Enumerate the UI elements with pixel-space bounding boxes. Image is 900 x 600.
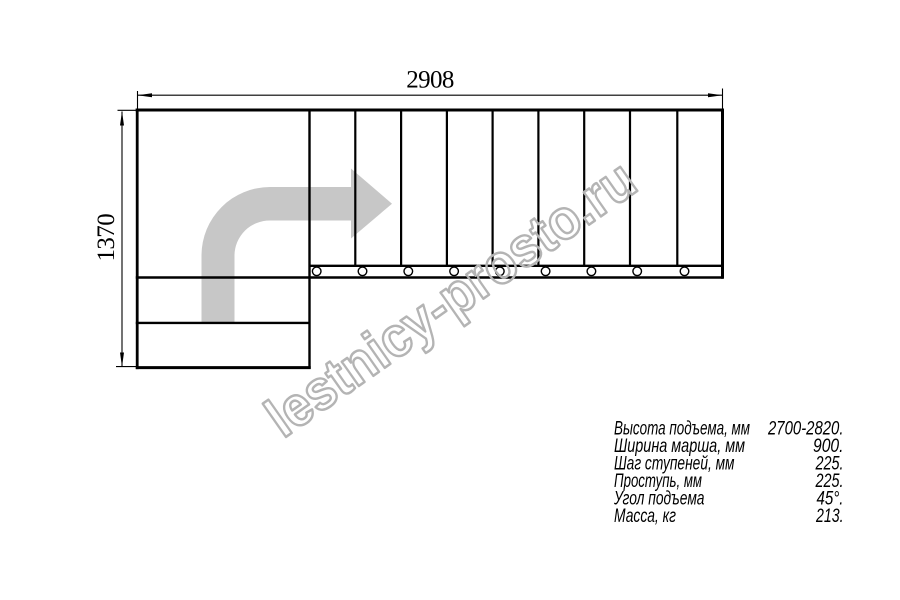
svg-text:2908: 2908 [406, 67, 454, 94]
svg-text:1370: 1370 [93, 214, 120, 262]
svg-text:Масса, кг: Масса, кг [614, 506, 676, 527]
svg-text:213.: 213. [815, 506, 843, 527]
